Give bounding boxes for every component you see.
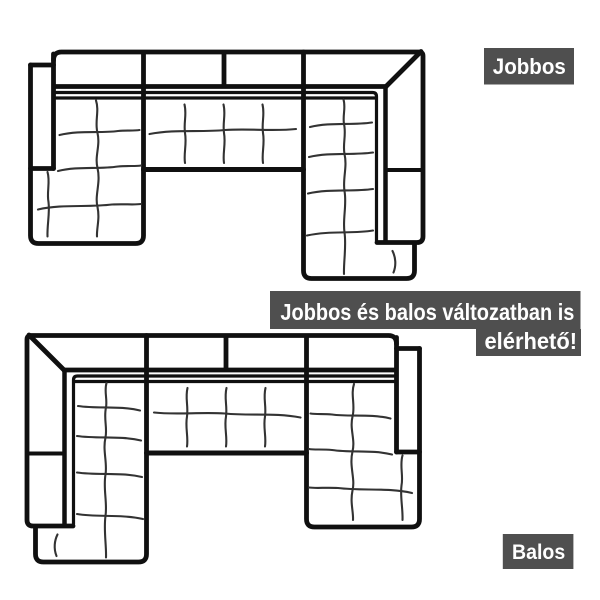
svg-text:Balos: Balos [512,541,565,564]
svg-text:Jobbos: Jobbos [493,54,566,79]
svg-text:Jobbos és balos változatban is: Jobbos és balos változatban is [280,299,574,325]
svg-text:elérhető!: elérhető! [485,328,578,354]
